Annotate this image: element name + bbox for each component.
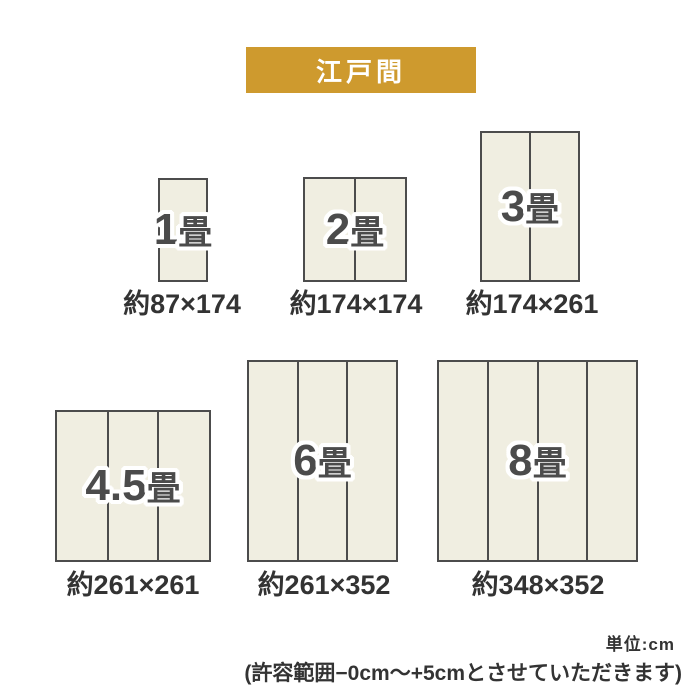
tatami-size-chart: 江戸間 1畳 約87×174 2畳 約174×174 3畳 約174×261 4… [0,0,700,700]
mat-size-number: 2 [326,205,350,254]
mat-size-unit: 畳 [533,445,567,483]
mat-size-label: 1畳 [154,208,212,252]
mat-size-unit: 畳 [350,214,384,252]
mat-size-unit: 畳 [178,214,212,252]
mat-dimensions-2jo: 約174×174 [290,291,423,318]
region-title-banner: 江戸間 [246,47,476,93]
mat-tile-4-5jo: 4.5畳 [55,410,211,562]
mat-tile-1jo: 1畳 [158,178,208,282]
mat-size-unit: 畳 [318,445,352,483]
mat-size-number: 4.5 [85,461,146,510]
mat-size-label: 4.5畳 [85,464,180,508]
mat-dimensions-3jo: 約174×261 [466,291,599,318]
mat-tile-3jo: 3畳 [480,131,580,282]
unit-note: 単位:cm [606,630,675,655]
mat-tile-2jo: 2畳 [303,177,407,282]
mat-size-label: 2畳 [326,208,384,252]
mat-size-unit: 畳 [147,470,181,508]
mat-dimensions-4-5jo: 約261×261 [67,572,200,599]
mat-tile-6jo: 6畳 [247,360,398,562]
mat-dimensions-8jo: 約348×352 [472,572,605,599]
mat-size-label: 8畳 [508,439,566,483]
mat-size-number: 8 [508,436,532,485]
mat-size-number: 1 [154,205,178,254]
mat-dimensions-1jo: 約87×174 [123,291,241,318]
mat-size-label: 6畳 [293,439,351,483]
mat-size-unit: 畳 [525,191,559,229]
region-title: 江戸間 [316,52,406,89]
mat-tile-8jo: 8畳 [437,360,638,562]
mat-size-label: 3畳 [501,185,559,229]
mat-size-number: 6 [293,436,317,485]
mat-seam [487,362,489,560]
mat-size-number: 3 [501,182,525,231]
mat-seam [586,362,588,560]
tolerance-note: (許容範囲−0cm〜+5cmとさせていただきます) [244,657,682,687]
mat-dimensions-6jo: 約261×352 [258,572,391,599]
